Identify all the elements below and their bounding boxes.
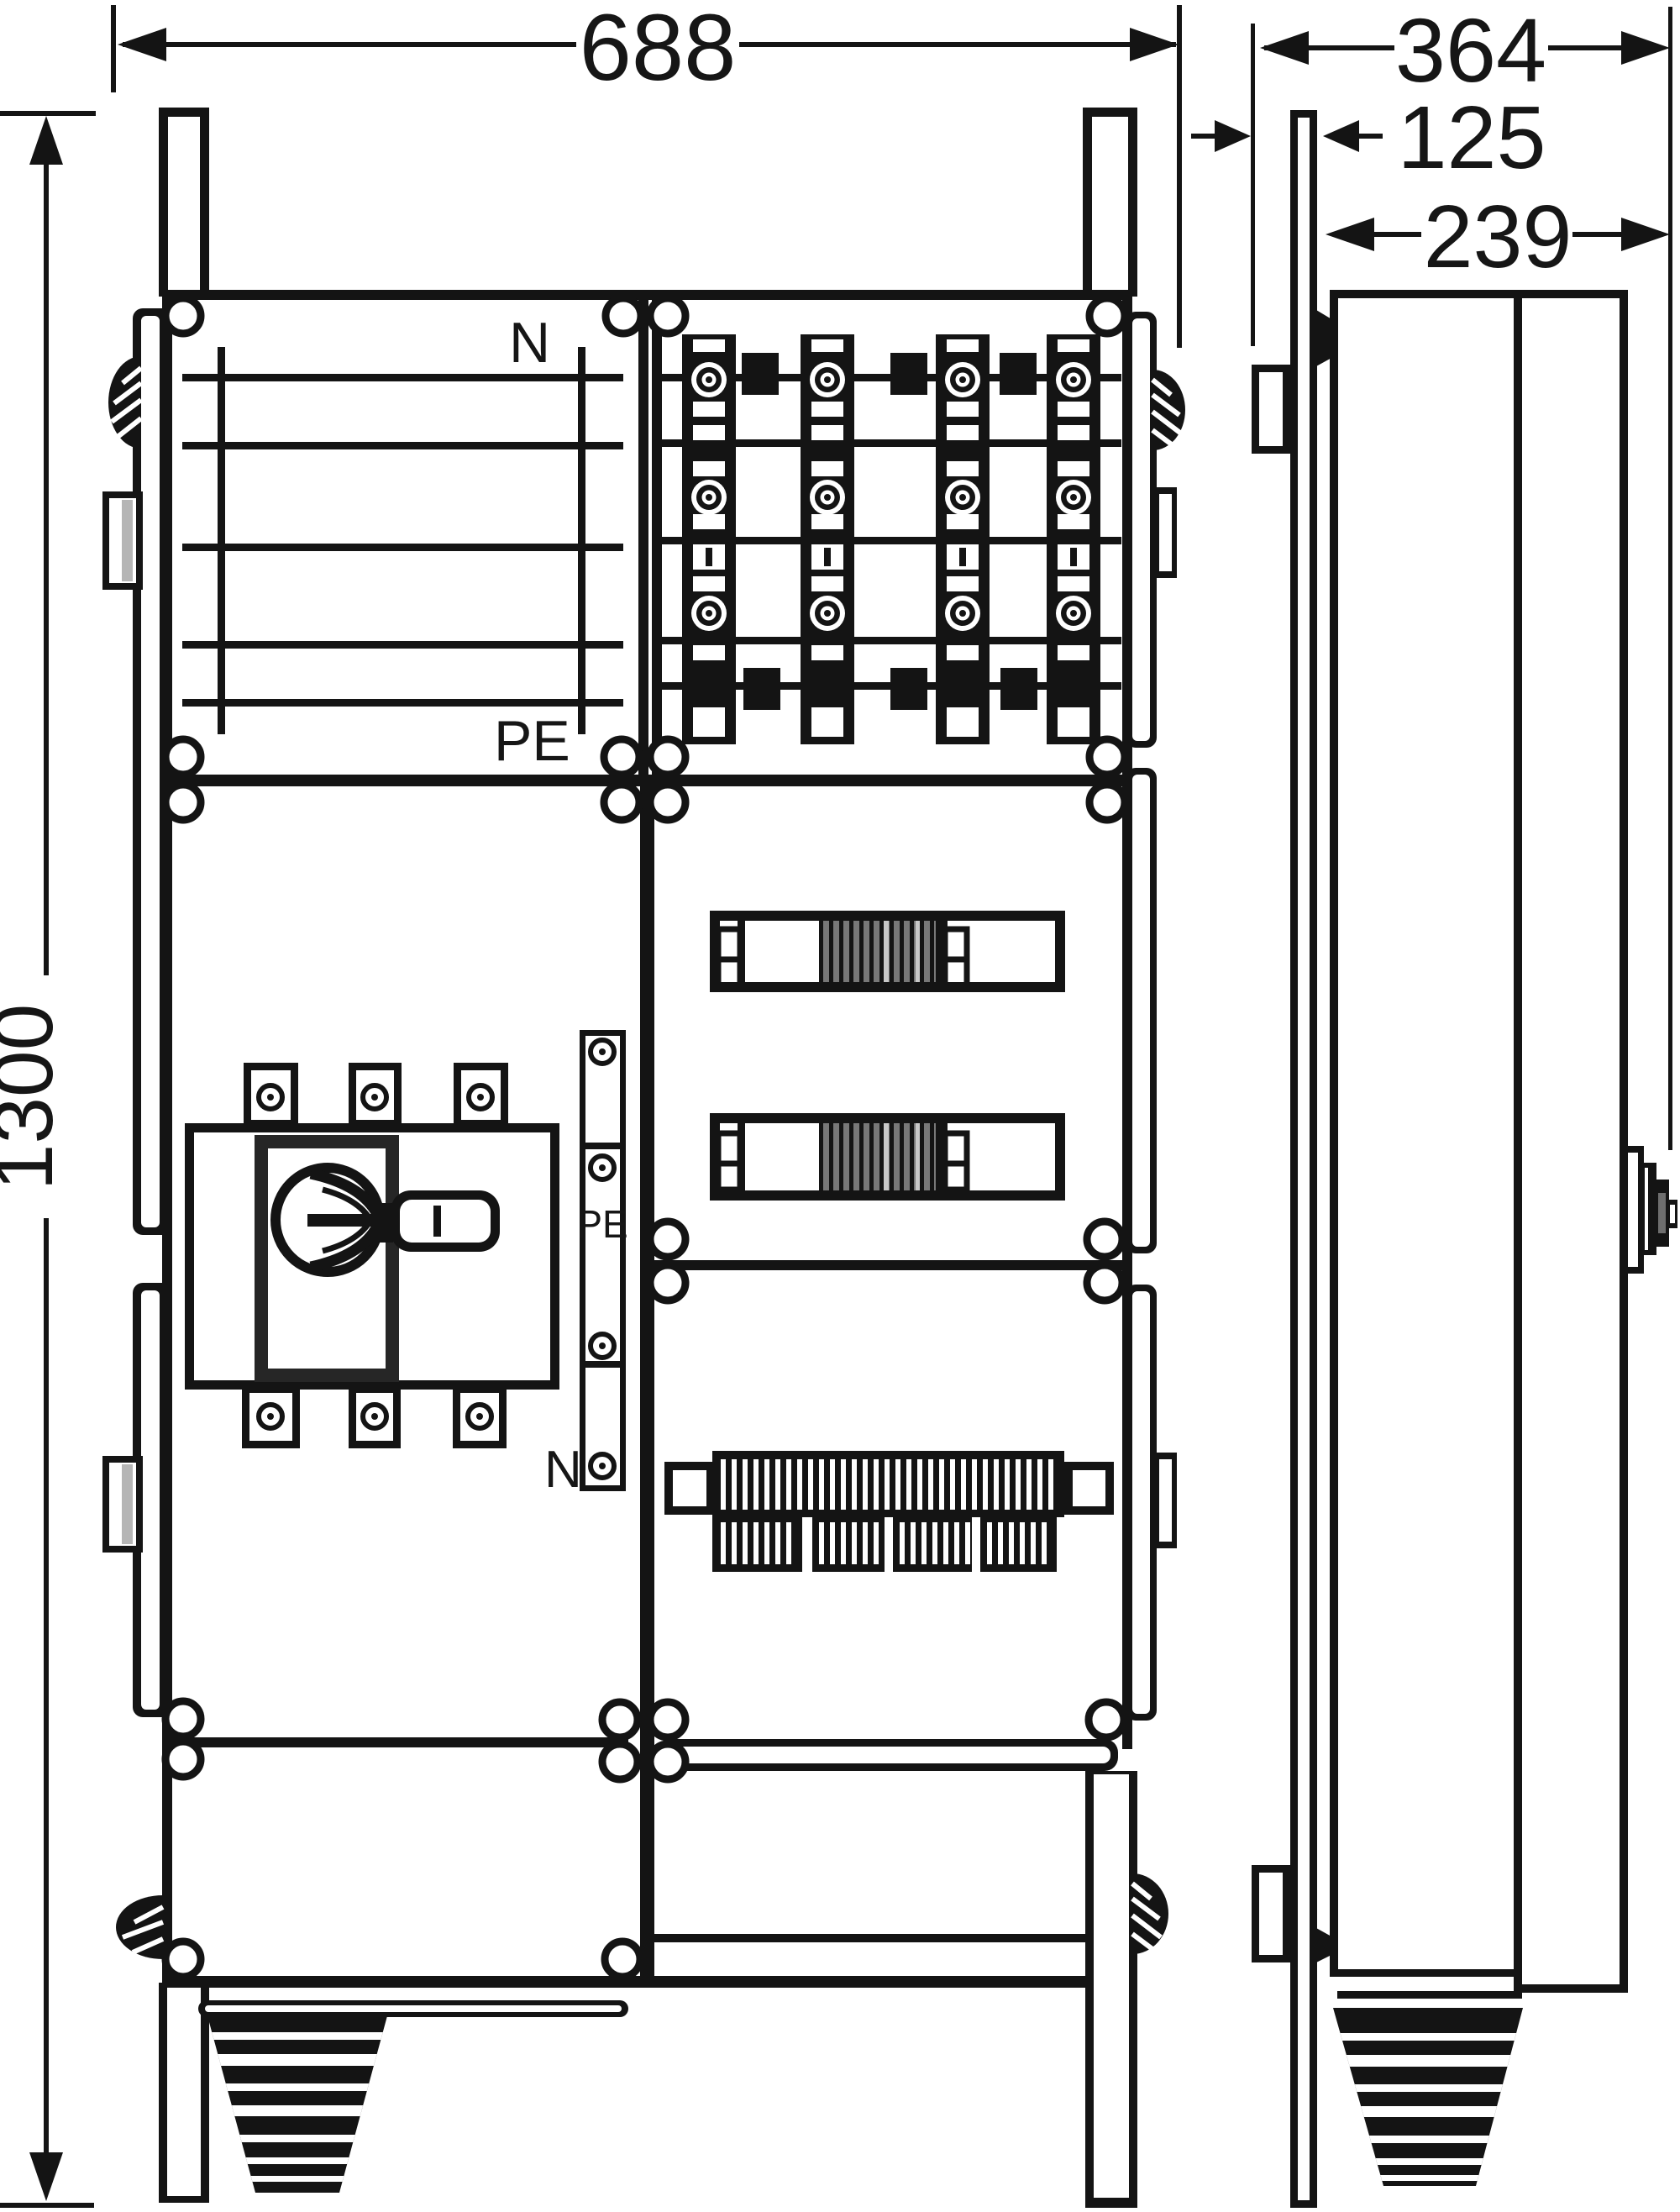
svg-text:125: 125	[1398, 88, 1546, 187]
svg-text:1300: 1300	[0, 1004, 71, 1190]
svg-text:688: 688	[580, 0, 737, 100]
svg-text:PE: PE	[494, 709, 570, 773]
svg-text:N: N	[509, 311, 550, 375]
svg-text:239: 239	[1424, 187, 1572, 286]
svg-text:PE: PE	[576, 1202, 627, 1246]
svg-text:364: 364	[1395, 0, 1546, 101]
svg-text:N: N	[544, 1441, 582, 1499]
